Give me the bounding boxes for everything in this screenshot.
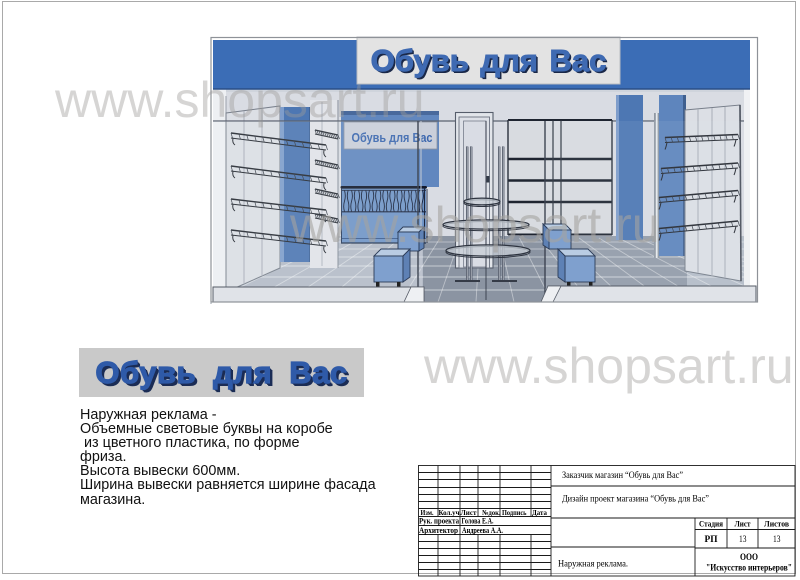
svg-text:Наружная реклама.: Наружная реклама. <box>558 559 628 569</box>
svg-text:Дата: Дата <box>532 508 547 517</box>
svg-text:Подпись: Подпись <box>502 508 527 517</box>
svg-text:Архитектор: Архитектор <box>419 525 458 535</box>
svg-text:Голова Е.А.: Голова Е.А. <box>462 516 494 526</box>
svg-text:Дизайн проект магазина “Обувь: Дизайн проект магазина “Обувь для Вас” <box>562 494 709 505</box>
svg-text:13: 13 <box>773 535 781 545</box>
svg-text:Рук. проекта: Рук. проекта <box>419 516 460 526</box>
svg-text:ООО: ООО <box>740 552 758 562</box>
svg-text:"Искусство интерьеров": "Искусство интерьеров" <box>706 563 792 573</box>
svg-text:РП: РП <box>705 535 719 545</box>
svg-text:Листов: Листов <box>764 518 789 528</box>
svg-text:13: 13 <box>739 535 747 545</box>
svg-text:Стадия: Стадия <box>699 518 723 528</box>
svg-text:Лист: Лист <box>735 518 752 528</box>
svg-text:Андреева А.А.: Андреева А.А. <box>462 525 503 535</box>
svg-text:Заказчик магазин “Обувь для Ва: Заказчик магазин “Обувь для Вас” <box>562 470 683 481</box>
